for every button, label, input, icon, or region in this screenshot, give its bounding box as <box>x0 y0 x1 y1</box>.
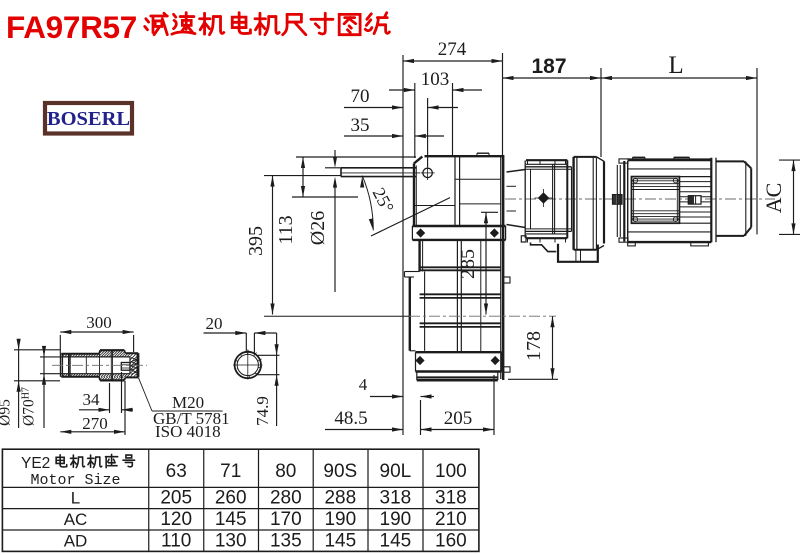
svg-text:4: 4 <box>359 375 368 394</box>
svg-text:170: 170 <box>270 509 302 530</box>
svg-text:BOSERL: BOSERL <box>47 108 130 130</box>
svg-text:285: 285 <box>457 249 479 279</box>
svg-text:395: 395 <box>245 226 267 256</box>
svg-text:145: 145 <box>324 531 356 552</box>
svg-text:20: 20 <box>206 314 223 333</box>
svg-text:135: 135 <box>270 531 302 552</box>
svg-text:AD: AD <box>64 532 88 551</box>
svg-text:187: 187 <box>531 55 566 78</box>
svg-text:48.5: 48.5 <box>334 408 367 429</box>
svg-text:190: 190 <box>324 509 356 530</box>
svg-text:145: 145 <box>215 509 247 530</box>
svg-text:130: 130 <box>215 531 247 552</box>
svg-text:Ø95: Ø95 <box>0 399 14 426</box>
svg-text:260: 260 <box>215 488 247 509</box>
svg-text:74.9: 74.9 <box>253 396 272 426</box>
svg-text:145: 145 <box>380 531 412 552</box>
svg-text:100: 100 <box>435 461 467 482</box>
svg-text:FA97R57: FA97R57 <box>6 9 137 45</box>
svg-text:ISO 4018: ISO 4018 <box>155 422 221 441</box>
svg-text:Ø26: Ø26 <box>307 211 329 245</box>
svg-text:288: 288 <box>324 488 356 509</box>
svg-text:160: 160 <box>435 531 467 552</box>
svg-text:34: 34 <box>83 390 101 409</box>
svg-text:63: 63 <box>166 461 187 482</box>
svg-text:L: L <box>71 489 80 508</box>
svg-text:Motor Size: Motor Size <box>30 472 120 489</box>
svg-text:71: 71 <box>220 461 241 482</box>
svg-text:AC: AC <box>761 183 786 214</box>
svg-text:318: 318 <box>380 488 412 509</box>
svg-text:80: 80 <box>275 461 296 482</box>
svg-text:35: 35 <box>351 115 370 136</box>
svg-text:190: 190 <box>380 509 412 530</box>
svg-text:103: 103 <box>421 69 450 90</box>
svg-text:210: 210 <box>435 509 467 530</box>
svg-text:274: 274 <box>438 39 467 60</box>
svg-text:270: 270 <box>82 414 108 433</box>
svg-text:318: 318 <box>435 488 467 509</box>
svg-text:90S: 90S <box>323 461 357 482</box>
svg-text:205: 205 <box>444 408 473 429</box>
svg-text:110: 110 <box>161 531 191 552</box>
svg-text:178: 178 <box>523 331 545 361</box>
svg-text:300: 300 <box>86 313 112 332</box>
svg-text:YE2: YE2 <box>21 455 50 472</box>
svg-text:70: 70 <box>351 86 370 107</box>
svg-text:AC: AC <box>64 510 88 529</box>
svg-text:120: 120 <box>160 509 192 530</box>
svg-text:205: 205 <box>160 488 192 509</box>
svg-text:113: 113 <box>275 215 297 244</box>
svg-text:L: L <box>668 52 683 79</box>
svg-text:90L: 90L <box>380 461 412 482</box>
svg-text:280: 280 <box>270 488 302 509</box>
